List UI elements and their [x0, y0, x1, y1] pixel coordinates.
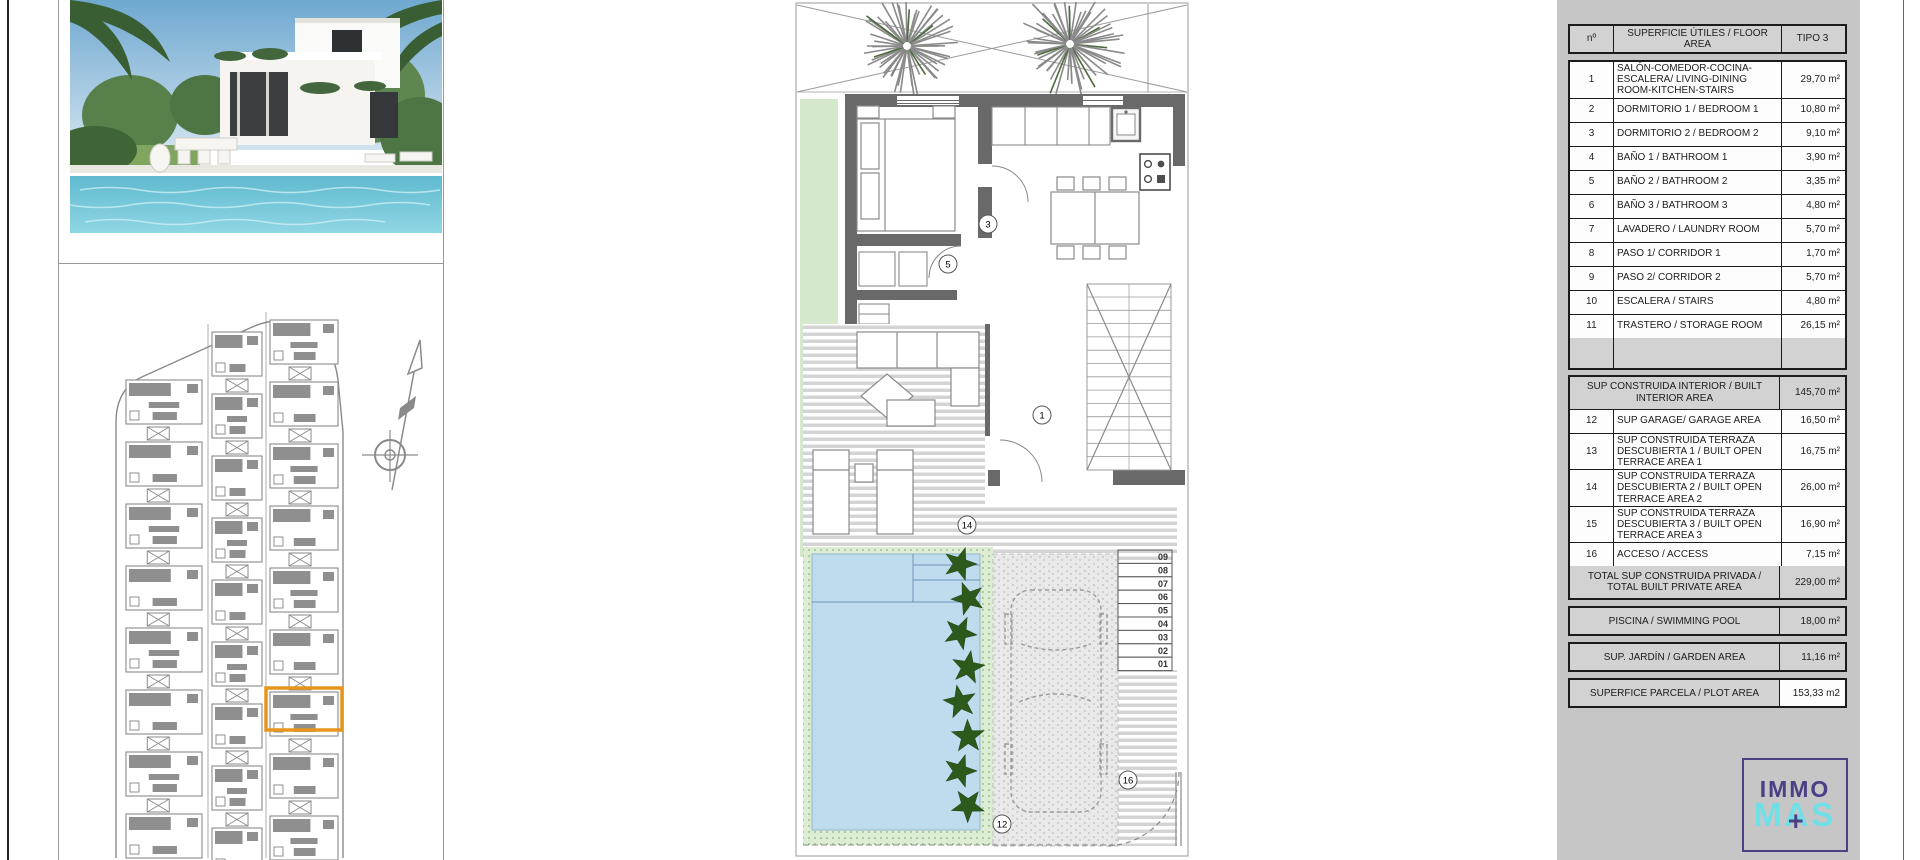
- table-row: 2 DORMITORIO 1 / BEDROOM 1 10,80 m²: [1570, 99, 1845, 123]
- col-header-area: SUPERFICIE ÚTILES / FLOOR AREA: [1614, 26, 1782, 52]
- summary-total: TOTAL SUP CONSTRUIDA PRIVADA / TOTAL BUI…: [1570, 566, 1845, 598]
- table-row: 13 SUP CONSTRUIDA TERRAZA DESCUBIERTA 1 …: [1570, 434, 1845, 471]
- table-row: 7 LAVADERO / LAUNDRY ROOM 5,70 m²: [1570, 219, 1845, 243]
- dining-table: [1051, 177, 1139, 259]
- summary-plot-label: SUPERFICE PARCELA / PLOT AREA: [1570, 680, 1780, 706]
- floor-plan: 090807060504030201 3 5 1 14 12 16: [795, 2, 1190, 858]
- blank-row: [1570, 338, 1845, 368]
- coffee-table-icon: [887, 400, 935, 426]
- table-row: 16 ACCESO / ACCESS 7,15 m²: [1570, 543, 1845, 566]
- table-garden-block: SUP. JARDÍN / GARDEN AREA 11,16 m²: [1568, 642, 1847, 672]
- svg-text:16: 16: [1123, 776, 1134, 787]
- svg-text:12: 12: [997, 820, 1008, 831]
- drawing-sheet: 090807060504030201 3 5 1 14 12 16 nº: [0, 0, 1920, 860]
- summary-interior: SUP CONSTRUIDA INTERIOR / BUILT INTERIOR…: [1570, 377, 1845, 410]
- stairs: [1087, 284, 1171, 470]
- table-row: 11 TRASTERO / STORAGE ROOM 26,15 m²: [1570, 315, 1845, 338]
- villa-photo-art: [70, 0, 442, 233]
- area-rows-built: 12 SUP GARAGE/ GARAGE AREA 16,50 m² 13 S…: [1570, 410, 1845, 567]
- step-label: 06: [1158, 592, 1168, 602]
- table-row: 8 PASO 1/ CORRIDOR 1 1,70 m²: [1570, 243, 1845, 267]
- sheet-edge-left: [7, 0, 9, 860]
- col-header-type: TIPO 3: [1782, 26, 1845, 52]
- table-plot-block: SUPERFICE PARCELA / PLOT AREA 153,33 m2: [1568, 678, 1847, 708]
- table-row: 4 BAÑO 1 / BATHROOM 1 3,90 m²: [1570, 147, 1845, 171]
- table-row: 9 PASO 2/ CORRIDOR 2 5,70 m²: [1570, 267, 1845, 291]
- step-label: 04: [1158, 619, 1168, 629]
- exterior-steps: 090807060504030201: [1118, 550, 1172, 671]
- table-row: 6 BAÑO 3 / BATHROOM 3 4,80 m²: [1570, 195, 1845, 219]
- table-header: nº SUPERFICIE ÚTILES / FLOOR AREA TIPO 3: [1568, 24, 1847, 54]
- floor-plan-art: 090807060504030201 3 5 1 14 12 16: [795, 2, 1190, 858]
- bed-icon: [857, 106, 955, 231]
- north-arrow-icon: [362, 340, 422, 490]
- sink-icon: [1112, 108, 1140, 141]
- terrace-hatch-band: [803, 506, 1177, 554]
- area-rows-main: 1 SALÓN-COMEDOR-COCINA-ESCALERA/ LIVING-…: [1570, 62, 1845, 338]
- step-label: 03: [1158, 632, 1168, 642]
- step-label: 01: [1158, 659, 1168, 669]
- summary-pool-label: PISCINA / SWIMMING POOL: [1570, 608, 1780, 634]
- svg-text:1: 1: [1039, 411, 1044, 422]
- photo-divider-line: [58, 263, 443, 264]
- site-plan: [100, 290, 455, 860]
- logo-plus-icon: +: [1788, 806, 1807, 837]
- table-built-block: SUP CONSTRUIDA INTERIOR / BUILT INTERIOR…: [1568, 375, 1847, 601]
- table-row: 10 ESCALERA / STAIRS 4,80 m²: [1570, 291, 1845, 315]
- svg-text:14: 14: [962, 521, 973, 532]
- site-units: [126, 320, 338, 860]
- area-table: nº SUPERFICIE ÚTILES / FLOOR AREA TIPO 3…: [1568, 24, 1847, 708]
- access-hatch: [1118, 670, 1177, 846]
- sheet-edge-right: [1903, 0, 1904, 860]
- table-row: 14 SUP CONSTRUIDA TERRAZA DESCUBIERTA 2 …: [1570, 470, 1845, 507]
- svg-text:5: 5: [945, 260, 950, 271]
- step-label: 05: [1158, 606, 1168, 616]
- site-plan-art: [100, 290, 455, 860]
- table-row: 12 SUP GARAGE/ GARAGE AREA 16,50 m²: [1570, 410, 1845, 434]
- immomas-logo: IMMO MAS +: [1742, 758, 1848, 852]
- villa-photo: [70, 0, 442, 233]
- table-rooms-block: 1 SALÓN-COMEDOR-COCINA-ESCALERA/ LIVING-…: [1568, 60, 1847, 370]
- summary-garden-label: SUP. JARDÍN / GARDEN AREA: [1570, 644, 1780, 670]
- kitchen-counter: [992, 107, 1110, 145]
- step-label: 08: [1158, 565, 1168, 575]
- pool-edge: [70, 173, 442, 176]
- table-row: 3 DORMITORIO 2 / BEDROOM 2 9,10 m²: [1570, 123, 1845, 147]
- pergola-trees: [864, 2, 1125, 97]
- summary-garden-value: 11,16 m²: [1780, 644, 1845, 670]
- step-label: 09: [1158, 552, 1168, 562]
- logo-text-mas: MAS +: [1754, 796, 1836, 834]
- right-panel: nº SUPERFICIE ÚTILES / FLOOR AREA TIPO 3…: [1557, 0, 1860, 860]
- table-row: 5 BAÑO 2 / BATHROOM 2 3,35 m²: [1570, 171, 1845, 195]
- summary-pool-value: 18,00 m²: [1780, 608, 1845, 634]
- step-label: 02: [1158, 646, 1168, 656]
- table-row: 15 SUP CONSTRUIDA TERRAZA DESCUBIERTA 3 …: [1570, 507, 1845, 544]
- driveway: [993, 554, 1118, 846]
- swimming-pool: [812, 554, 980, 830]
- step-label: 07: [1158, 579, 1168, 589]
- compass-icon: [362, 430, 418, 482]
- col-header-num: nº: [1570, 26, 1614, 52]
- summary-plot-value: 153,33 m2: [1780, 680, 1845, 706]
- pergola-lines: [797, 4, 1187, 92]
- frame-line-left: [58, 0, 59, 860]
- stove-icon: [1140, 154, 1170, 190]
- table-row: 1 SALÓN-COMEDOR-COCINA-ESCALERA/ LIVING-…: [1570, 62, 1845, 99]
- table-pool-block: PISCINA / SWIMMING POOL 18,00 m²: [1568, 606, 1847, 636]
- svg-text:3: 3: [985, 220, 990, 231]
